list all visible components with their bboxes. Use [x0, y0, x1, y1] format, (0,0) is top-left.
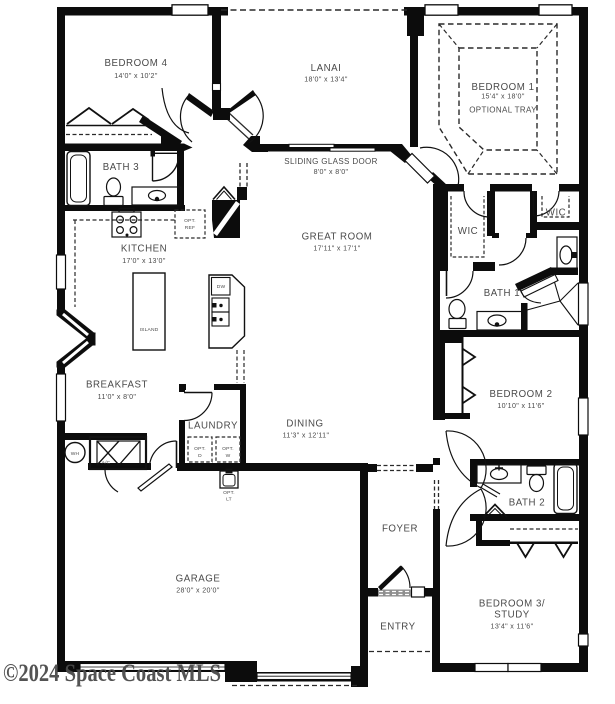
- svg-text:8'0" x 8'0": 8'0" x 8'0": [314, 168, 349, 176]
- svg-text:11'0" x 8'0": 11'0" x 8'0": [98, 393, 137, 401]
- svg-text:A/C: A/C: [102, 460, 111, 466]
- svg-text:GREAT ROOM: GREAT ROOM: [302, 232, 373, 243]
- svg-text:DW: DW: [217, 284, 226, 290]
- svg-text:SLIDING GLASS DOOR: SLIDING GLASS DOOR: [284, 157, 377, 166]
- svg-text:10'10" x 11'6": 10'10" x 11'6": [497, 402, 544, 410]
- svg-text:FOYER: FOYER: [382, 524, 418, 535]
- svg-text:OPT.: OPT.: [184, 218, 196, 224]
- svg-text:17'11" x 17'1": 17'11" x 17'1": [313, 245, 360, 253]
- svg-text:BATH 2: BATH 2: [509, 498, 546, 509]
- svg-text:BATH 1: BATH 1: [484, 288, 521, 299]
- svg-text:18'0" x 13'4": 18'0" x 13'4": [304, 76, 348, 84]
- svg-text:BEDROOM 2: BEDROOM 2: [489, 389, 552, 400]
- svg-text:OPT.: OPT.: [194, 446, 206, 452]
- svg-text:28'0" x 20'0": 28'0" x 20'0": [176, 587, 220, 595]
- svg-text:17'0" x 13'0": 17'0" x 13'0": [122, 257, 166, 265]
- svg-text:ENTRY: ENTRY: [380, 622, 415, 633]
- svg-text:REF: REF: [185, 225, 195, 231]
- svg-text:BEDROOM 4: BEDROOM 4: [104, 58, 167, 69]
- svg-text:ISLAND: ISLAND: [140, 327, 159, 333]
- svg-text:OPTIONAL TRAY: OPTIONAL TRAY: [469, 106, 537, 115]
- svg-text:11'3" x 12'11": 11'3" x 12'11": [283, 432, 330, 440]
- svg-text:LT: LT: [226, 497, 232, 503]
- svg-text:STUDY: STUDY: [494, 610, 530, 621]
- svg-text:©2024 Space Coast MLS: ©2024 Space Coast MLS: [3, 660, 221, 687]
- svg-text:BATH 3: BATH 3: [103, 162, 140, 173]
- svg-text:D: D: [198, 453, 202, 459]
- svg-text:DINING: DINING: [286, 419, 323, 430]
- svg-text:OPT.: OPT.: [223, 490, 235, 496]
- svg-text:KITCHEN: KITCHEN: [121, 244, 167, 255]
- svg-text:LAUNDRY: LAUNDRY: [188, 421, 238, 432]
- svg-text:BREAKFAST: BREAKFAST: [86, 380, 148, 391]
- svg-text:BEDROOM 3/: BEDROOM 3/: [479, 599, 545, 610]
- svg-text:GARAGE: GARAGE: [176, 574, 221, 585]
- svg-text:13'4" x 11'6": 13'4" x 11'6": [491, 623, 534, 631]
- svg-text:BEDROOM 1: BEDROOM 1: [471, 82, 534, 93]
- svg-text:OPT.: OPT.: [222, 446, 234, 452]
- svg-text:15'4" x 18'0": 15'4" x 18'0": [481, 93, 525, 101]
- svg-text:14'0" x 10'2": 14'0" x 10'2": [114, 72, 158, 80]
- svg-text:WIC: WIC: [458, 226, 478, 237]
- svg-text:WIC: WIC: [546, 208, 566, 219]
- svg-text:WH: WH: [71, 451, 80, 457]
- svg-text:W: W: [226, 453, 231, 459]
- svg-text:LANAI: LANAI: [311, 63, 342, 74]
